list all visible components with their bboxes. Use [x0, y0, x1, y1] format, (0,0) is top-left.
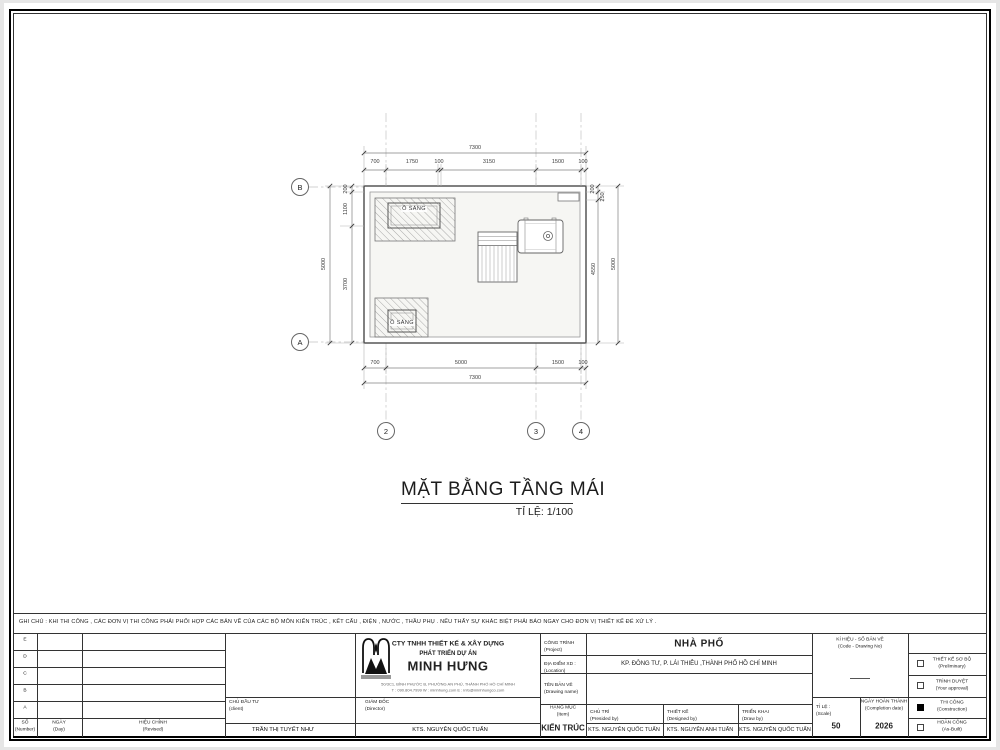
dim-left-seg-1: 1100: [343, 203, 349, 215]
client-name: TRẦN THỊ TUYẾT NHƯ: [252, 727, 314, 733]
dim-top-seg-5: 100: [578, 159, 587, 165]
dim-top-seg-4: 1500: [552, 159, 564, 165]
dim-left-seg-0: 200: [343, 184, 349, 193]
construction-note: GHI CHÚ : KHI THI CÔNG , CÁC ĐƠN VỊ THI …: [19, 619, 657, 625]
dim-right-seg-1: 250: [600, 192, 606, 201]
dim-top-seg-3: 3150: [483, 159, 495, 165]
stage-label-0: THIẾT KẾ SƠ BỘ(Preliminary): [933, 657, 971, 670]
roof-vent: [558, 193, 579, 201]
revision-col-revised: HIỆU CHỈNH(Revised): [139, 720, 167, 733]
revision-row-D: D: [23, 655, 26, 662]
stage-checkbox-1: [917, 682, 924, 689]
skylight-1: [375, 198, 455, 241]
dim-left-seg-2: 3700: [343, 278, 349, 290]
revision-col-day: NGÀY(Day): [52, 720, 66, 733]
project-name: NHÀ PHỐ: [674, 639, 724, 650]
dim-left-total: 5000: [321, 258, 327, 270]
stage-checkbox-0: [917, 660, 924, 667]
location-label: ĐỊA ĐIỂM XD :(Location): [544, 662, 576, 675]
stage-label-2: THI CÔNG(Construction): [937, 700, 967, 713]
stage-checkbox-3: [917, 724, 924, 731]
dim-top-seg-0: 700: [370, 159, 379, 165]
company-name: MINH HƯNG: [407, 659, 488, 674]
water-tank: [518, 218, 563, 253]
dim-top-total: 7300: [469, 145, 481, 151]
dim-right-seg-0: 200: [590, 184, 596, 193]
presided-name: KTS. NGUYỄN QUỐC TUẤN: [588, 727, 660, 733]
stage-label-3: HOÀN CÔNG(As-Built): [937, 720, 967, 733]
revision-row-B: B: [23, 689, 26, 696]
location-value: KP. ĐÔNG TƯ, P. LÁI THIÊU ,THÀNH PHỐ HỒ …: [621, 661, 777, 667]
company-contact: T : 090.804.7999 W : minhhung.com E : in…: [392, 688, 505, 693]
stage-label-1: TRÌNH DUYỆT(Your approval): [936, 679, 969, 692]
dim-bottom-seg-2: 1500: [552, 360, 564, 366]
dim-right-seg-2: 4550: [591, 263, 597, 275]
scale-value: 50: [832, 722, 841, 731]
dim-bottom-total: 7300: [469, 375, 481, 381]
date-value: 2026: [875, 722, 893, 731]
deployed-name: KTS. NGUYỄN QUỐC TUẤN: [739, 727, 811, 733]
grid-bubble-2: 2: [377, 422, 395, 440]
dim-bottom-seg-0: 700: [370, 360, 379, 366]
skylight-label-2: Ô SÁNG: [389, 320, 415, 326]
item-label: HẠNG MỤC(Item): [550, 705, 576, 718]
item-value: KIẾN TRÚC: [541, 724, 585, 733]
skylight-label-1: Ô SÁNG: [401, 206, 427, 212]
designed-label: THIẾT KẾ(Designed by): [667, 710, 697, 723]
grid-bubble-4: 4: [572, 422, 590, 440]
skylight-2: [375, 298, 428, 337]
company-address: 50/3C1, BÌNH PHƯỚC B, PHƯỜNG AN PHÚ, THÀ…: [381, 682, 515, 687]
grid-bubble-B: B: [291, 178, 309, 196]
revision-row-A: A: [23, 706, 26, 713]
grid-bubble-A: A: [291, 333, 309, 351]
drawing-name-label: TÊN BẢN VẼ(Drawing name): [544, 683, 578, 696]
revision-row-E: E: [23, 638, 26, 645]
revision-row-C: C: [23, 672, 26, 679]
presided-label: CHỦ TRÌ(Presided by): [590, 710, 619, 723]
dim-top-seg-2: 100: [434, 159, 443, 165]
drawing-title: MẶT BẰNG TẦNG MÁI: [401, 479, 573, 504]
dim-top-seg-1: 1750: [406, 159, 418, 165]
dim-bottom-seg-3: 100: [578, 360, 587, 366]
client-label: CHỦ ĐẦU TƯ(client): [229, 700, 259, 713]
deployed-label: TRIỂN KHAI(Draw by): [742, 710, 769, 723]
company-logo-icon: [361, 636, 391, 682]
revision-col-number: SỐ(Number): [15, 720, 35, 733]
drawing-sheet: 7300 700 1750 100 3150 1500 100 5000 200…: [0, 0, 1000, 750]
dim-bottom-seg-1: 5000: [455, 360, 467, 366]
scale-label: TỈ LỆ :(Scale): [816, 705, 831, 718]
company-line2: PHÁT TRIỂN DỰ ÁN: [419, 651, 476, 657]
roof-plan-drawing: [0, 0, 1000, 620]
company-line1: CTY TNHH THIẾT KẾ & XÂY DỰNG: [392, 641, 504, 648]
stage-checkbox-2: [917, 704, 924, 711]
grid-bubble-3: 3: [527, 422, 545, 440]
director-label: GIÁM ĐỐC(Director): [365, 700, 389, 713]
solar-collector: [478, 232, 517, 282]
project-label: CÔNG TRÌNH(Project): [544, 641, 574, 654]
director-name: KTS. NGUYỄN QUỐC TUẤN: [412, 727, 488, 733]
code-label: KÍ HIỆU - SỐ BẢN VẼ(Code - Drawing No): [836, 637, 883, 650]
date-label: NGÀY HOÀN THÀNH(Completion date): [861, 699, 907, 712]
dim-right-total: 5000: [611, 258, 617, 270]
drawing-scale-note: TỈ LỆ: 1/100: [401, 506, 573, 518]
designed-name: KTS. NGUYỄN ANH TUẤN: [667, 727, 734, 733]
